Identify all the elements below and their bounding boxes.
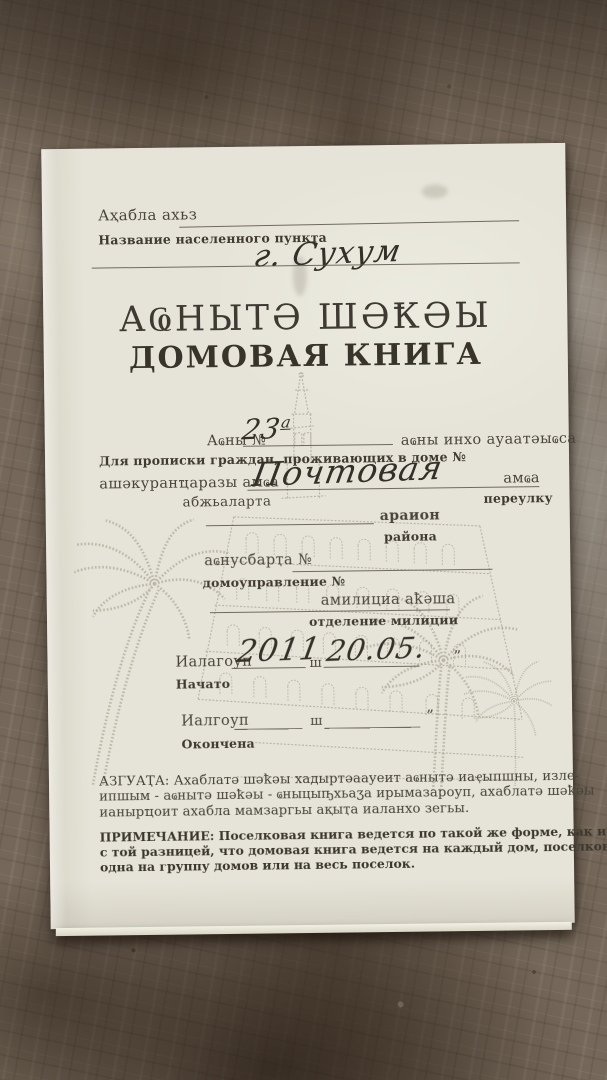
settlement-handwritten-value: г. Сухум: [251, 233, 404, 275]
housing-office-label-abkhaz: аҩнусбарҭа №: [204, 552, 312, 570]
finished-unit: ш: [310, 714, 323, 729]
house-number-handwritten: 23а: [240, 412, 294, 447]
finished-date-line: [324, 727, 420, 729]
housing-office-line: [292, 569, 492, 572]
street-suffix-abkhaz: амҩа: [503, 470, 540, 487]
started-date-handwritten: 20.05.: [324, 630, 429, 668]
finished-quote-mark: ”: [426, 706, 434, 724]
lane-label-abkhaz: абжьаларта: [182, 493, 271, 510]
started-unit: ш: [309, 656, 322, 671]
finished-year-line: [234, 728, 302, 730]
photo-of-house-book: Аҳабла ахьз Название населенного пункта …: [0, 0, 607, 1080]
started-date-line: [324, 666, 420, 668]
azguata-paragraph: АЗГУАҬА: Ахаблатә шәҟәы хадыртәаауеит аҩ…: [99, 769, 546, 821]
settlement-label-abkhaz: Аҳабла ахьз: [98, 205, 197, 224]
house-book-cover: Аҳабла ахьз Название населенного пункта …: [41, 143, 574, 929]
lane-label-russian: переулку: [483, 490, 552, 506]
finished-label-russian: Окончена: [181, 736, 255, 752]
district-line: [206, 523, 374, 526]
police-label-abkhaz: амилициа аҟәша: [321, 591, 456, 609]
title-abkhaz: АҨНЫТӘ ШӘҞӘЫ: [83, 295, 527, 340]
housing-office-label-russian: домоуправление №: [202, 574, 345, 591]
district-label-abkhaz: араион: [380, 507, 441, 524]
settlement-line: [179, 220, 519, 228]
started-quote-mark: ”: [453, 647, 461, 665]
house-suffix-abkhaz: аҩны инхо ауаатәыҩса: [401, 431, 577, 450]
paper-smudge: [422, 184, 448, 198]
title-russian: ДОМОВАЯ КНИГА: [84, 336, 528, 376]
started-label-russian: Начато: [176, 676, 231, 692]
finished-label-abkhaz: Иалгоуп: [181, 713, 249, 730]
district-label-russian: района: [384, 528, 437, 544]
primechanie-paragraph: ПРИМЕЧАНИЕ: Поселковая книга ведется по …: [100, 824, 547, 875]
police-label-russian: отделение милиции: [309, 612, 458, 629]
